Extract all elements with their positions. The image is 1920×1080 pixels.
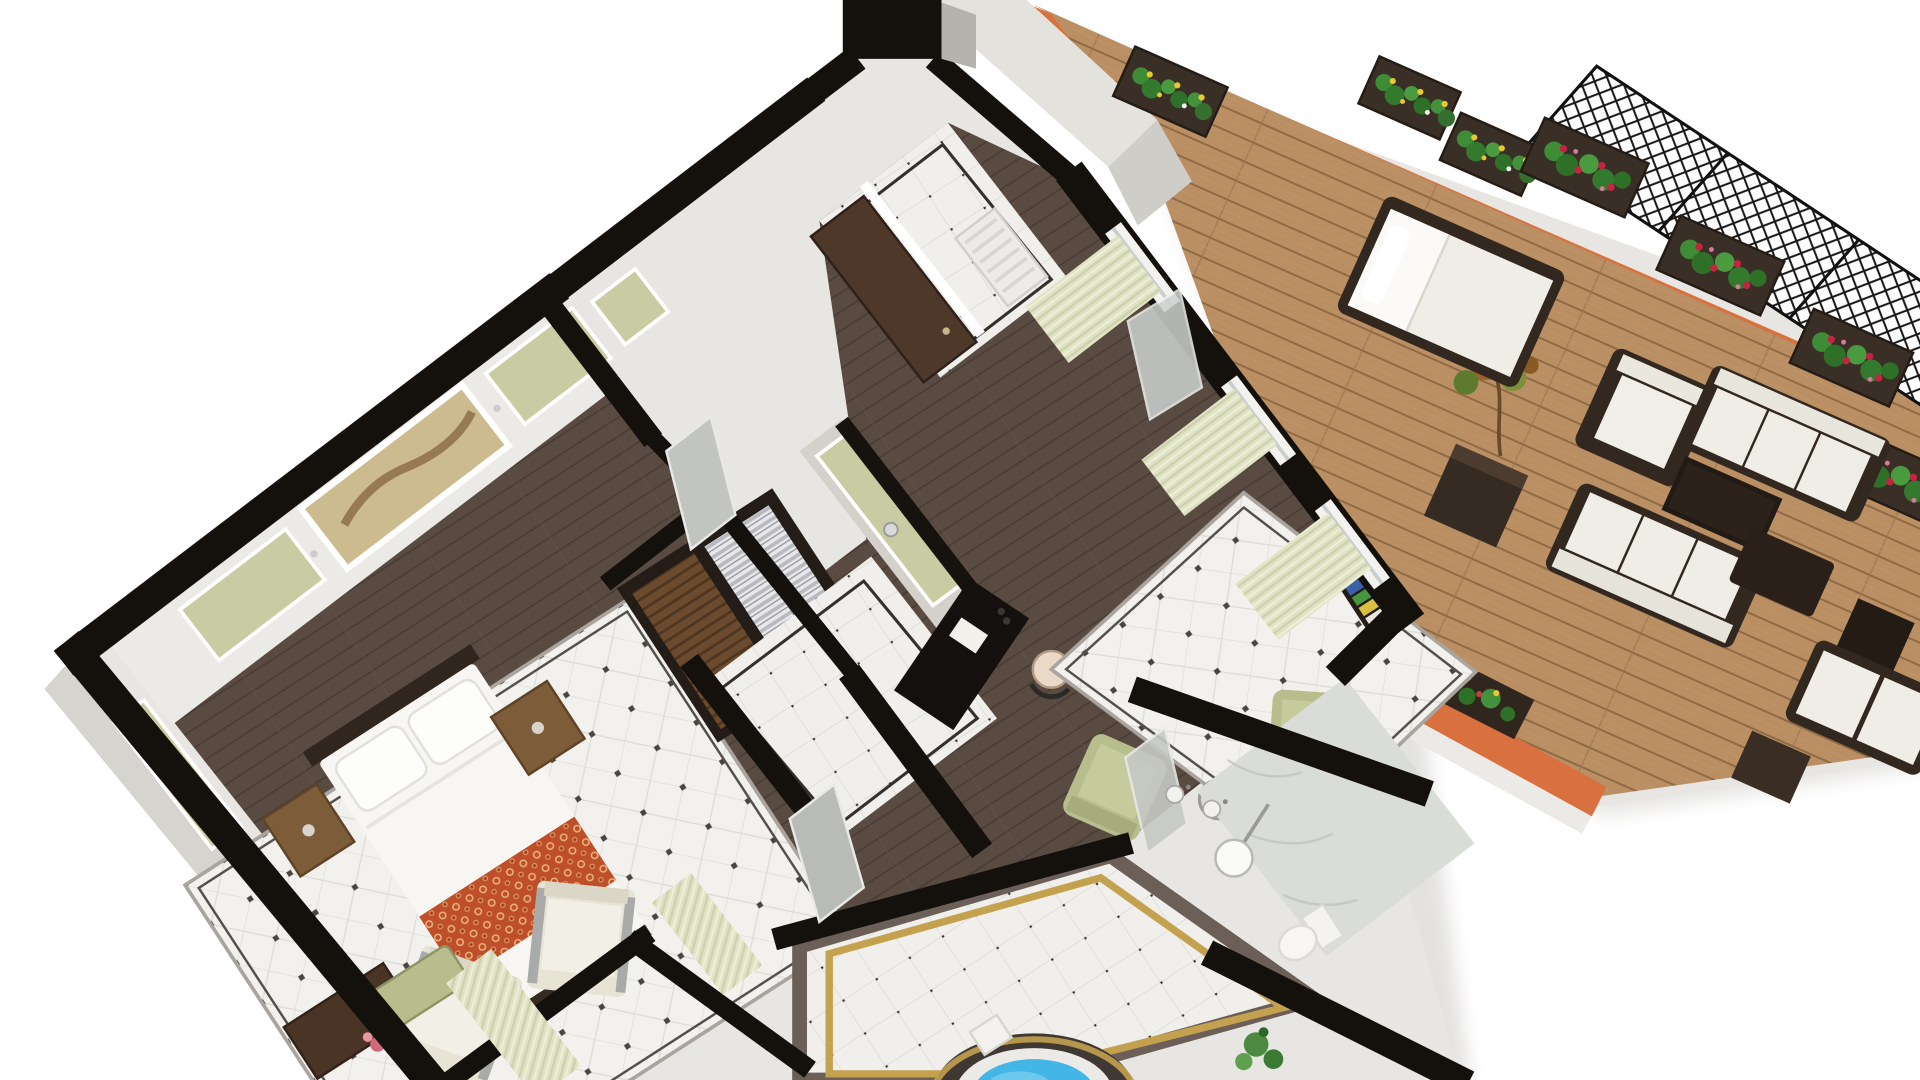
chimney bbox=[843, 0, 976, 69]
shower-head bbox=[1215, 840, 1252, 877]
planter-box-2 bbox=[1358, 56, 1466, 141]
wall-knob bbox=[884, 523, 898, 536]
floorplan-render bbox=[0, 0, 1920, 1080]
